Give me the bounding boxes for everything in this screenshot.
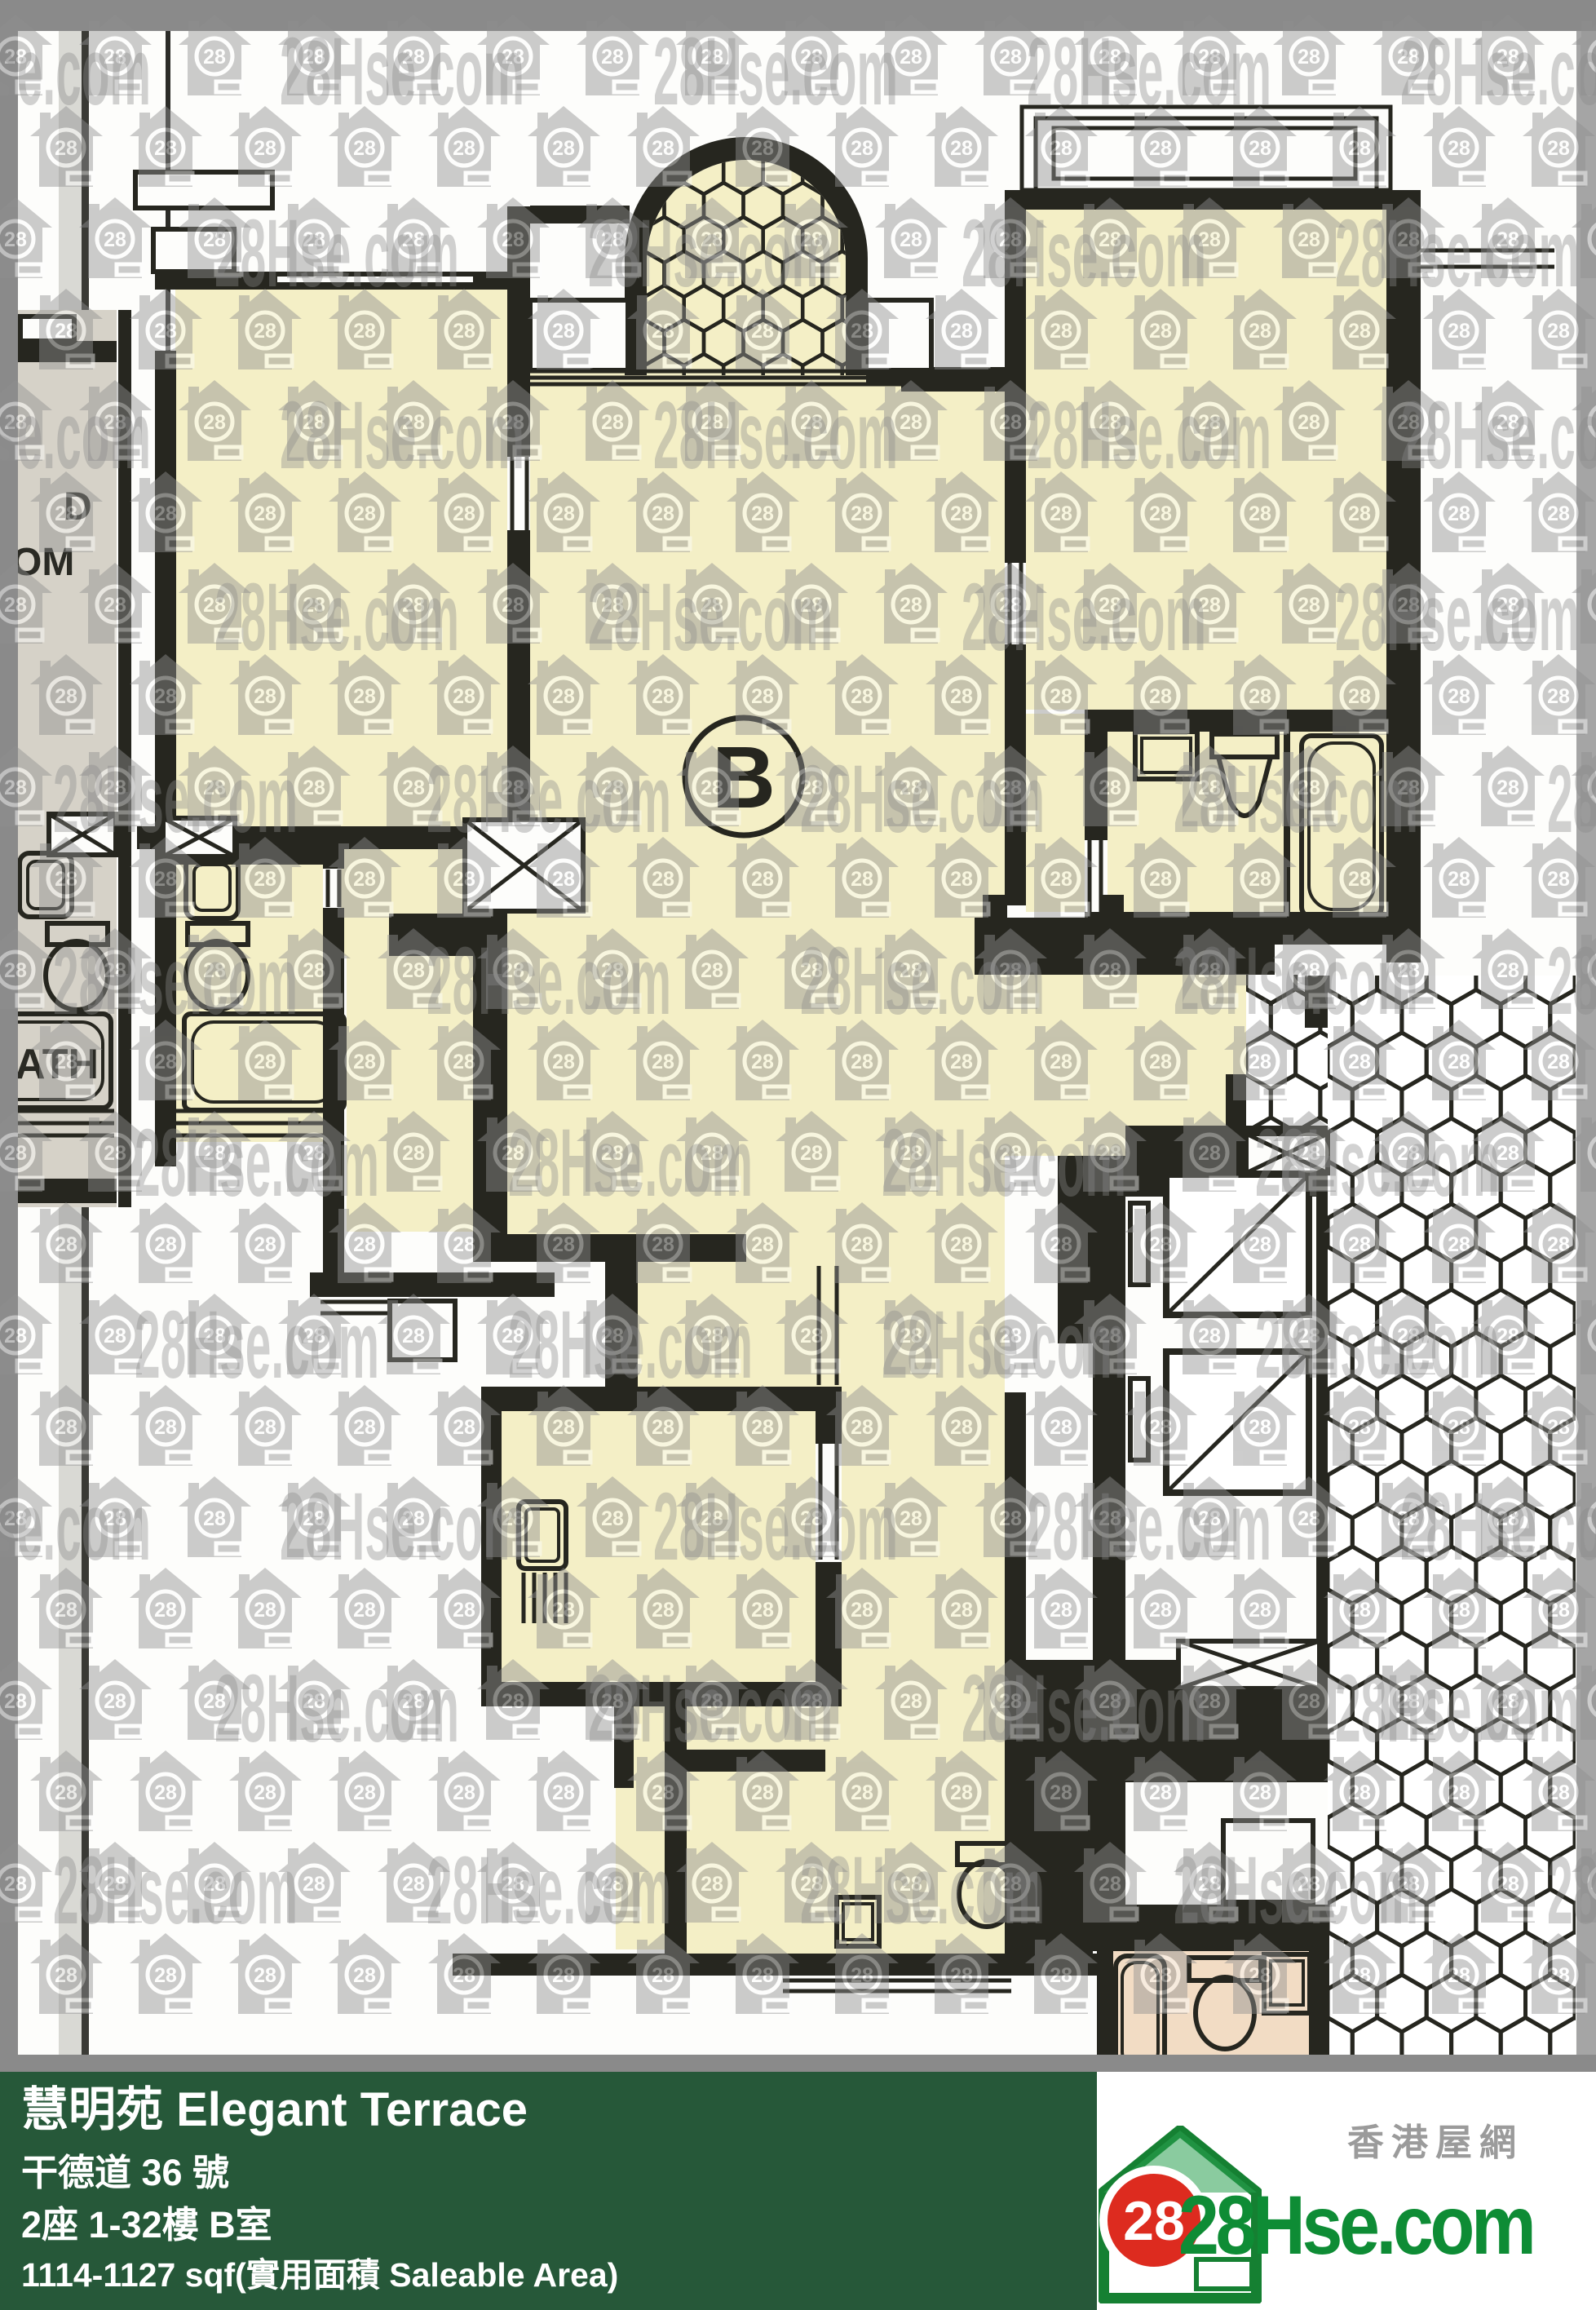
watermark-brand-text: 28Hse.com <box>0 1473 151 1581</box>
watermark-brand-text: 28Hse.com <box>800 1837 1045 1945</box>
scan-bottom-edge <box>0 2055 1596 2072</box>
site-chinese-name: 香港屋網 <box>1347 2113 1523 2166</box>
watermark-brand-text: 28Hse.com <box>280 18 524 126</box>
watermark-brand-text: 28Hse.com <box>1027 382 1271 489</box>
watermark-brand-text: 28Hse.com <box>1255 1109 1500 1217</box>
watermark-brand-text: 28Hse.com <box>1255 1291 1500 1399</box>
watermark-brand-text: 28Hse.com <box>1547 927 1596 1035</box>
logo-panel: 香港屋網 28 28Hse.com <box>1097 2072 1596 2310</box>
site-brand-name: 28Hse.com <box>1178 2178 1532 2273</box>
watermark-brand-text: 28Hse.com <box>0 18 151 126</box>
watermark-brand-text: 28Hse.com <box>508 1109 753 1217</box>
watermark-brand-text: 28Hse.com <box>800 927 1045 1035</box>
watermark-brand-text: 28Hse.com <box>1027 18 1271 126</box>
watermark-brand-text: 28Hse.com <box>588 1655 833 1763</box>
watermark-brand-text: 28Hse.com <box>1174 746 1418 853</box>
watermark-brand-text: 28Hse.com <box>588 200 833 308</box>
watermark-brand-text: 28Hse.com <box>588 564 833 671</box>
watermark-brand-text: 28Hse.com <box>427 746 671 853</box>
watermark-brand-text: 28Hse.com <box>653 1473 898 1581</box>
estate-name: 慧明苑 Elegant Terrace <box>21 2087 528 2134</box>
watermark-brand-text: 28Hse.com <box>135 1291 379 1399</box>
estate-address: 干德道 36 號 <box>21 2154 229 2191</box>
watermark-brand-text: 28Hse.com <box>800 746 1045 853</box>
watermark-brand-text: 28Hse.com <box>280 382 524 489</box>
watermark-brand-text: 28Hse.com <box>882 1291 1126 1399</box>
watermark-brand-text: 28Hse.com <box>882 1109 1126 1217</box>
watermark-brand-text: 28Hse.com <box>1335 564 1580 671</box>
watermark-brand-text: 28Hse.com <box>53 927 298 1035</box>
watermark-brand-text: 28Hse.com <box>1027 1473 1271 1581</box>
watermark-brand-text: 28Hse.com <box>214 564 459 671</box>
watermark-brand-text: 28Hse.com <box>508 1291 753 1399</box>
watermark-brand-text: 28Hse.com <box>427 927 671 1035</box>
watermark-brand-text: 28Hse.com <box>427 1837 671 1945</box>
watermark-brand-text: 28Hse.com <box>53 746 298 853</box>
watermark-brand-text: 28Hse.com <box>135 1109 379 1217</box>
watermark-brand-text: 28Hse.com <box>653 18 898 126</box>
logo-badge-text: 28 <box>1123 2190 1185 2252</box>
watermark-brand-text: 28Hse.com <box>1400 18 1596 126</box>
watermark-brand-text: 28Hse.com <box>214 200 459 308</box>
watermark-brand-text: 28Hse.com <box>1335 200 1580 308</box>
watermark-brand-text: 28Hse.com <box>1400 382 1596 489</box>
watermark-brand-text: 28Hse.com <box>280 1473 524 1581</box>
watermark-brand-text: 28Hse.com <box>1174 927 1418 1035</box>
watermark-brand-text: 28Hse.com <box>1335 1655 1580 1763</box>
watermark-brand-text: 28Hse.com <box>1547 746 1596 853</box>
watermark-brand-text: 28Hse.com <box>962 564 1206 671</box>
watermark-brand-text: 28Hse.com <box>53 1837 298 1945</box>
watermark-brand-text: 28Hse.com <box>962 1655 1206 1763</box>
watermark-brand-text: 28Hse.com <box>962 200 1206 308</box>
floor-plan-image: 28 D OM ATH <box>0 0 1596 2310</box>
block-floor-unit: 2座 1-32樓 B室 <box>21 2206 272 2243</box>
watermark-brand-text: 28Hse.com <box>1547 1837 1596 1945</box>
info-bar: 慧明苑 Elegant Terrace 干德道 36 號 2座 1-32樓 B室… <box>0 2072 1097 2310</box>
watermark-brand-text: 28Hse.com <box>1174 1837 1418 1945</box>
saleable-area: 1114-1127 sqf(實用面積 Saleable Area) <box>21 2259 618 2292</box>
watermark-brand-text: 28Hse.com <box>214 1655 459 1763</box>
watermark-brand-text: 28Hse.com <box>0 382 151 489</box>
watermark-brand-text: 28Hse.com <box>653 382 898 489</box>
watermark-brand-text: 28Hse.com <box>1400 1473 1596 1581</box>
floor-plan-page: 28 D OM ATH <box>0 0 1596 2310</box>
